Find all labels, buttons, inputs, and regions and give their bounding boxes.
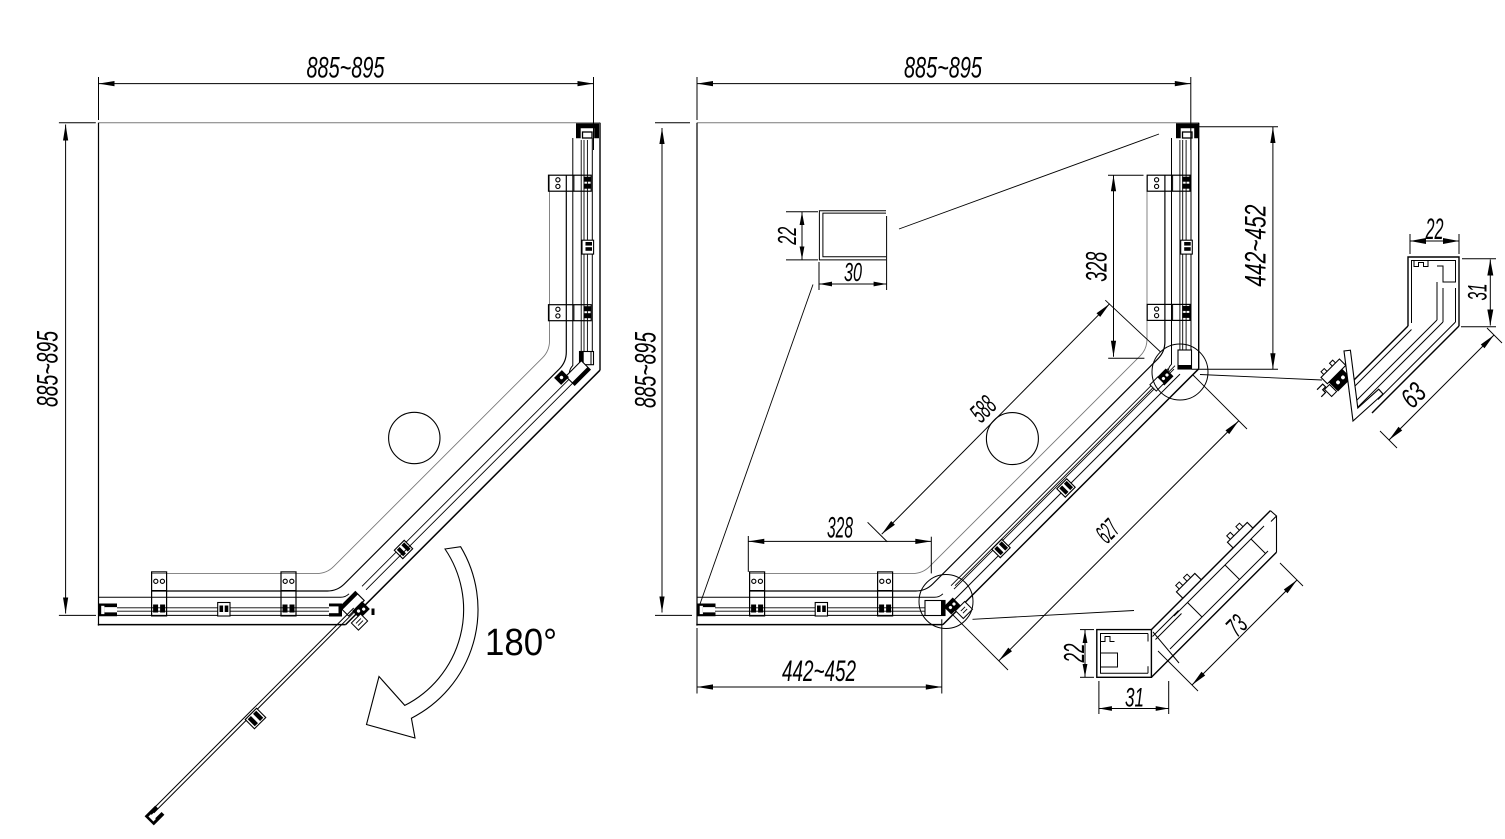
svg-text:328: 328 bbox=[1081, 252, 1114, 282]
svg-text:328: 328 bbox=[827, 512, 853, 545]
svg-text:22: 22 bbox=[1059, 644, 1091, 664]
svg-text:885~895: 885~895 bbox=[307, 52, 385, 85]
svg-text:885~895: 885~895 bbox=[904, 52, 982, 85]
svg-text:180°: 180° bbox=[485, 622, 557, 664]
svg-text:22: 22 bbox=[1425, 213, 1444, 246]
svg-text:31: 31 bbox=[1463, 284, 1493, 301]
svg-text:30: 30 bbox=[844, 257, 862, 287]
svg-text:31: 31 bbox=[1125, 683, 1144, 713]
svg-text:22: 22 bbox=[772, 226, 802, 245]
svg-text:885~895: 885~895 bbox=[32, 331, 65, 407]
svg-text:442~452: 442~452 bbox=[1239, 204, 1272, 286]
svg-text:442~452: 442~452 bbox=[782, 655, 856, 688]
svg-text:885~895: 885~895 bbox=[629, 332, 662, 408]
